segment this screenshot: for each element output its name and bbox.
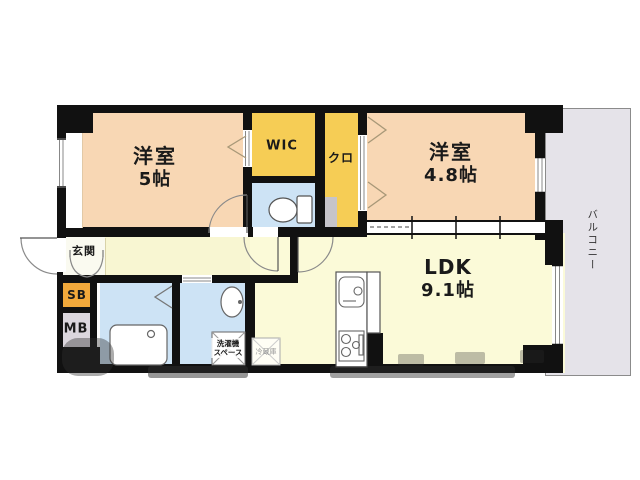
entrance-step-line <box>105 238 106 276</box>
bedroom2-name-label: 洋室 <box>429 142 473 162</box>
closet-label: クロ <box>328 152 354 164</box>
window-ldk-balcony <box>552 265 563 345</box>
floor-plan: 洋室 5帖 洋室 4.8帖 LDK 9.1帖 WIC クロ 玄関 SB MB バ… <box>0 0 640 480</box>
watermark-blob <box>148 366 248 378</box>
laundry-space-label: 洗濯機 スペース <box>211 338 244 358</box>
bedroom2-size-label: 4.8帖 <box>424 167 478 185</box>
wall-ldk-window-top <box>552 237 563 265</box>
wall-closet-right-1 <box>358 105 367 135</box>
wall-bedroom2-right-2 <box>535 193 545 222</box>
wall-hall-top-1 <box>57 227 210 237</box>
wall-hall-bottom-2 <box>212 275 298 283</box>
wall-hall-bottom-1 <box>57 275 182 283</box>
watermark-blob <box>520 350 544 363</box>
watermark-blob <box>62 338 114 376</box>
closet-door-front <box>358 135 367 211</box>
shoe-box-label: SB <box>67 289 87 301</box>
wall-bedroom1-right-1 <box>243 113 252 130</box>
refrigerator-label: 冷蔵庫 <box>254 347 279 357</box>
watermark-blob <box>330 366 515 378</box>
wall-bath-wash-divider <box>172 283 180 367</box>
window-bedroom1-left <box>57 138 66 188</box>
wall-bedroom2-right-1 <box>535 133 545 157</box>
bedroom1-size-label: 5帖 <box>139 171 172 189</box>
pillar-top-right <box>525 105 563 133</box>
watermark-blob <box>398 354 424 366</box>
bedroom1-door-opening <box>210 227 248 237</box>
ldk-size-label: 9.1帖 <box>421 282 475 300</box>
entrance-door-opening <box>57 238 66 272</box>
meter-box-label: MB <box>64 323 89 336</box>
wic-label: WIC <box>266 140 298 153</box>
wall-wic-closet <box>315 105 325 237</box>
entrance-label: 玄関 <box>72 246 96 257</box>
bedroom1-name-label: 洋室 <box>133 146 177 166</box>
window-bedroom2 <box>535 157 545 193</box>
laundry-line2: スペース <box>213 348 242 357</box>
entrance-door-arc <box>21 238 57 274</box>
wall-hall-ldk <box>290 237 298 283</box>
watermark-blob <box>455 352 485 364</box>
bedroom1-window-bay <box>66 133 83 228</box>
sliding-partition-bedroom2-ldk <box>367 220 545 235</box>
balcony-label: バルコニー <box>587 209 598 272</box>
wall-closet-right-2 <box>358 211 367 237</box>
washroom-door-opening <box>182 275 212 283</box>
ldk-name-label: LDK <box>424 257 472 277</box>
wall-left-1 <box>57 113 66 138</box>
wic-door-opening <box>243 130 252 167</box>
wall-wic-toilet <box>250 176 315 183</box>
laundry-line1: 洗濯機 <box>213 339 242 348</box>
toilet-door-opening <box>253 227 278 237</box>
wall-top <box>57 105 563 113</box>
wall-sb-mb-divider <box>57 307 97 313</box>
